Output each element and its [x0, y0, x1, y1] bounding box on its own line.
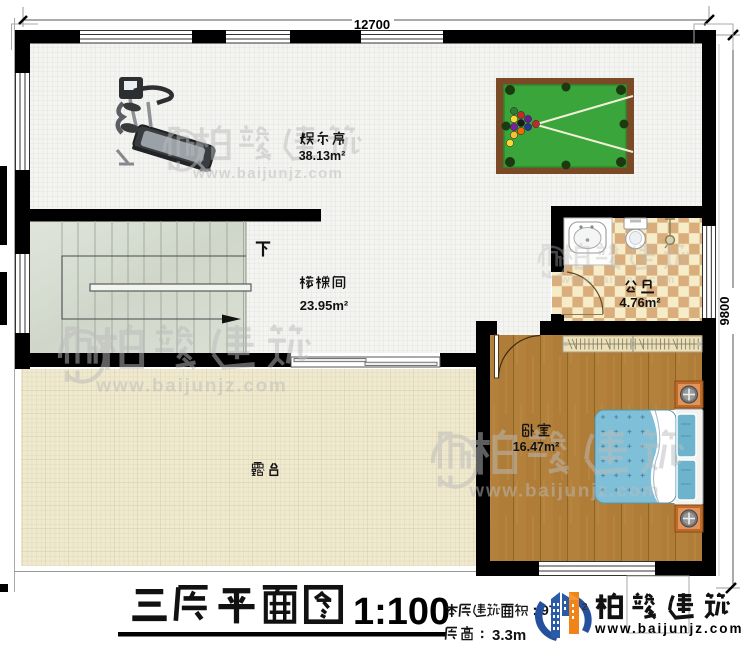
svg-text:www.baijunjz.com: www.baijunjz.com	[594, 621, 744, 636]
svg-text:www.baijunjz.com: www.baijunjz.com	[468, 481, 660, 502]
svg-text:16.47m²: 16.47m²	[513, 440, 560, 454]
svg-text:2: 2	[582, 602, 588, 613]
svg-text:23.95m²: 23.95m²	[300, 298, 349, 313]
svg-text:www.baijunjz.com: www.baijunjz.com	[192, 166, 343, 182]
svg-text:www.baijunjz.com: www.baijunjz.com	[95, 376, 287, 397]
svg-text:12700: 12700	[354, 17, 390, 32]
svg-text:3.3m: 3.3m	[492, 627, 526, 644]
svg-text:38.13m²: 38.13m²	[299, 149, 346, 163]
svg-text:4.76m²: 4.76m²	[619, 295, 661, 310]
svg-text:1:100: 1:100	[353, 591, 450, 633]
svg-text:www.baijunjz.com: www.baijunjz.com	[560, 274, 676, 286]
